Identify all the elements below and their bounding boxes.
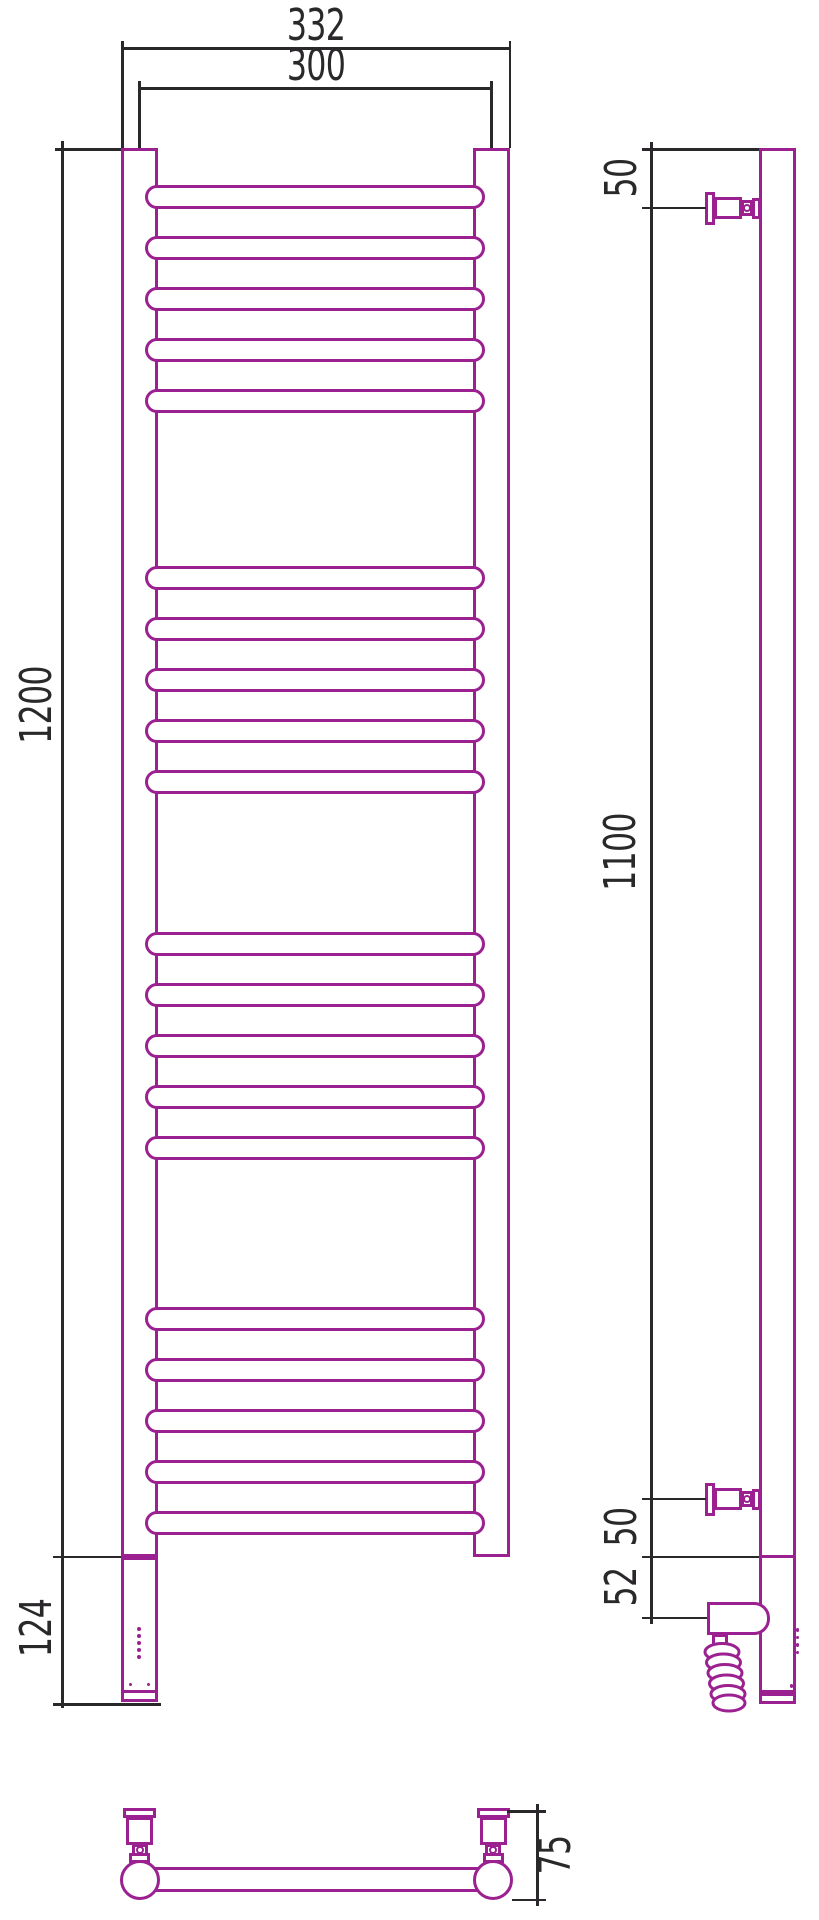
rung xyxy=(145,566,485,590)
rung xyxy=(145,770,485,794)
bracket-pin xyxy=(743,1495,751,1503)
plan-right-tube-circle xyxy=(473,1860,513,1900)
side-tube xyxy=(759,148,796,1693)
ext-line xyxy=(138,81,141,148)
ext-line xyxy=(121,41,124,148)
ext-line xyxy=(53,1556,121,1559)
bracket-cap xyxy=(752,1489,761,1510)
bracket-body xyxy=(480,1817,507,1845)
rung xyxy=(145,1358,485,1382)
rung xyxy=(145,617,485,641)
rung xyxy=(145,1511,485,1535)
rung xyxy=(145,1034,485,1058)
bracket-body xyxy=(714,197,742,219)
rung xyxy=(145,1307,485,1331)
tube-vent-dot xyxy=(796,1636,800,1640)
dim-label-housing-height: 124 xyxy=(15,1599,59,1657)
rung xyxy=(145,983,485,1007)
rung xyxy=(145,668,485,692)
ext-line xyxy=(507,1810,546,1813)
tube-screw-dot xyxy=(790,1684,794,1688)
plan-rung-bar xyxy=(150,1867,481,1892)
bracket-body xyxy=(126,1817,153,1845)
bracket-cap xyxy=(752,198,761,219)
dim-label-rail-spacing: 300 xyxy=(287,44,345,88)
ext-line xyxy=(642,207,706,210)
dim-line-1200-124 xyxy=(61,141,64,1708)
dim-label-bottom-bracket-offset: 50 xyxy=(600,1508,644,1547)
dim-label-top-bracket-offset: 50 xyxy=(600,159,644,198)
ext-line xyxy=(509,41,512,148)
rung xyxy=(145,338,485,362)
rung xyxy=(145,932,485,956)
rung xyxy=(145,1409,485,1433)
ext-line xyxy=(512,1899,546,1902)
heating-element xyxy=(707,1602,770,1635)
technical-drawing-sheet: 332 300 1200 124 50 1100 50 52 75 xyxy=(0,0,819,1920)
ext-line xyxy=(642,148,759,151)
rung xyxy=(145,287,485,311)
rung xyxy=(145,1136,485,1160)
dim-line-side-chain xyxy=(650,142,653,1624)
front-housing-cap-line xyxy=(121,1690,158,1693)
tube-vent-dot xyxy=(796,1643,800,1647)
bracket-body xyxy=(714,1488,742,1510)
dim-label-bracket-span: 1100 xyxy=(599,813,643,891)
dim-label-wall-depth: 75 xyxy=(534,1836,578,1875)
dim-label-body-height: 1200 xyxy=(15,666,59,744)
rung xyxy=(145,719,485,743)
rung xyxy=(145,236,485,260)
ext-line xyxy=(642,1556,759,1559)
bracket-pin xyxy=(743,204,751,212)
ext-line xyxy=(53,1703,161,1706)
ext-line xyxy=(55,148,121,151)
ext-line xyxy=(642,1498,706,1501)
power-cable-coil xyxy=(690,1640,770,1718)
tube-vent-dot xyxy=(796,1628,800,1632)
rung xyxy=(145,1085,485,1109)
ext-line xyxy=(490,81,493,148)
rung xyxy=(145,1460,485,1484)
ext-line xyxy=(642,1617,707,1620)
side-tube-joint-line xyxy=(759,1555,796,1558)
plan-left-tube-circle xyxy=(120,1860,160,1900)
rung xyxy=(145,185,485,209)
dim-label-heater-offset: 52 xyxy=(600,1568,644,1607)
rung xyxy=(145,389,485,413)
tube-vent-dot xyxy=(796,1651,800,1655)
